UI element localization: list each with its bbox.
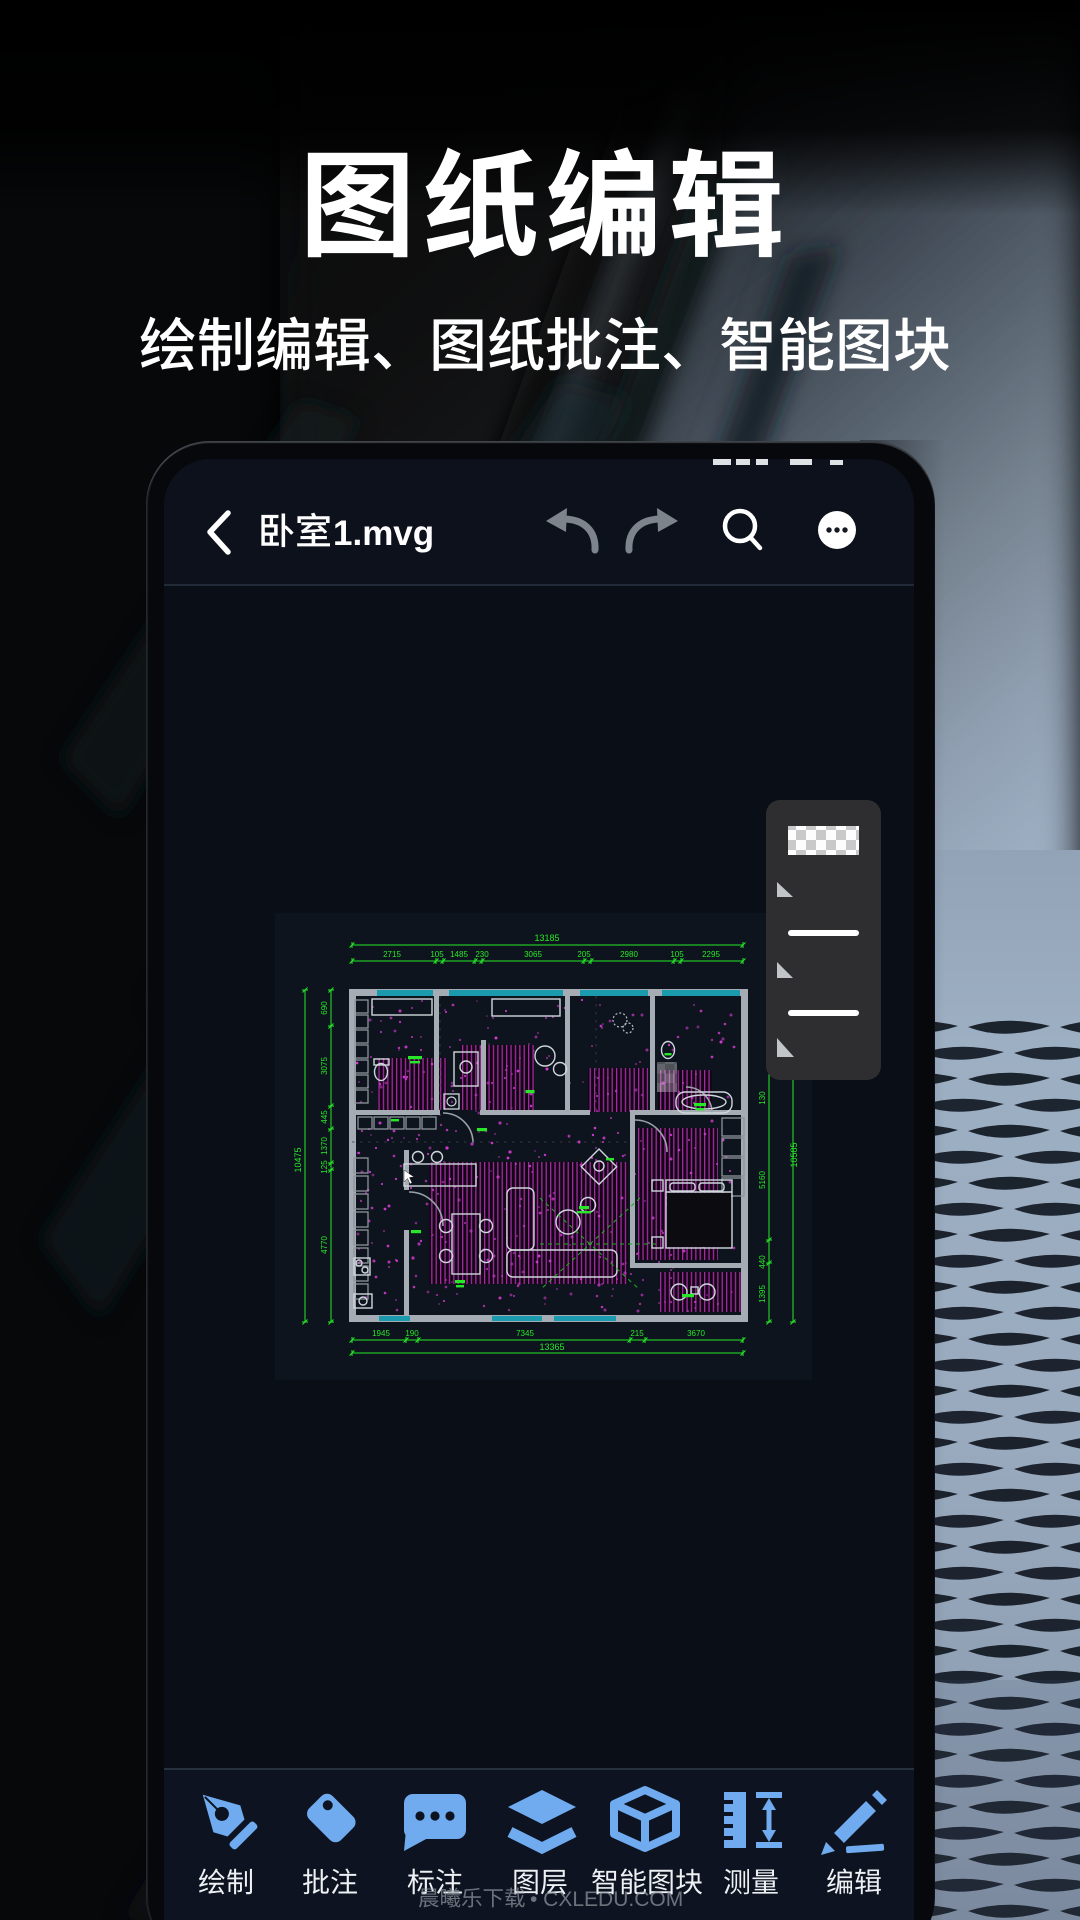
svg-text:440: 440 bbox=[758, 1255, 767, 1269]
svg-text:1945: 1945 bbox=[372, 1329, 390, 1338]
svg-text:230: 230 bbox=[475, 950, 489, 959]
svg-text:215: 215 bbox=[630, 1329, 644, 1338]
svg-text:3075: 3075 bbox=[320, 1057, 329, 1075]
svg-text:1.mvg: 1.mvg bbox=[333, 514, 434, 553]
svg-text:13365: 13365 bbox=[539, 1342, 564, 1352]
svg-text:205: 205 bbox=[577, 950, 591, 959]
svg-text:105: 105 bbox=[430, 950, 444, 959]
svg-text:1395: 1395 bbox=[758, 1285, 767, 1303]
svg-text:2715: 2715 bbox=[383, 950, 401, 959]
svg-text:1370: 1370 bbox=[320, 1137, 329, 1155]
svg-text:5160: 5160 bbox=[758, 1171, 767, 1189]
svg-text:445: 445 bbox=[320, 1110, 329, 1124]
svg-text:190: 190 bbox=[405, 1329, 419, 1338]
svg-text:• CXLEDU.COM: • CXLEDU.COM bbox=[530, 1888, 683, 1911]
svg-text:13185: 13185 bbox=[534, 933, 559, 943]
svg-text:7345: 7345 bbox=[516, 1329, 534, 1338]
svg-text:125: 125 bbox=[320, 1160, 329, 1174]
svg-text:105: 105 bbox=[670, 950, 684, 959]
svg-text:2980: 2980 bbox=[620, 950, 638, 959]
svg-text:10475: 10475 bbox=[293, 1147, 303, 1172]
svg-text:2295: 2295 bbox=[702, 950, 720, 959]
svg-text:690: 690 bbox=[320, 1001, 329, 1015]
svg-text:4770: 4770 bbox=[320, 1236, 329, 1254]
svg-text:10585: 10585 bbox=[789, 1142, 799, 1167]
svg-text:3670: 3670 bbox=[687, 1329, 705, 1338]
svg-text:130: 130 bbox=[758, 1091, 767, 1105]
svg-text:3065: 3065 bbox=[524, 950, 542, 959]
svg-text:1485: 1485 bbox=[450, 950, 468, 959]
